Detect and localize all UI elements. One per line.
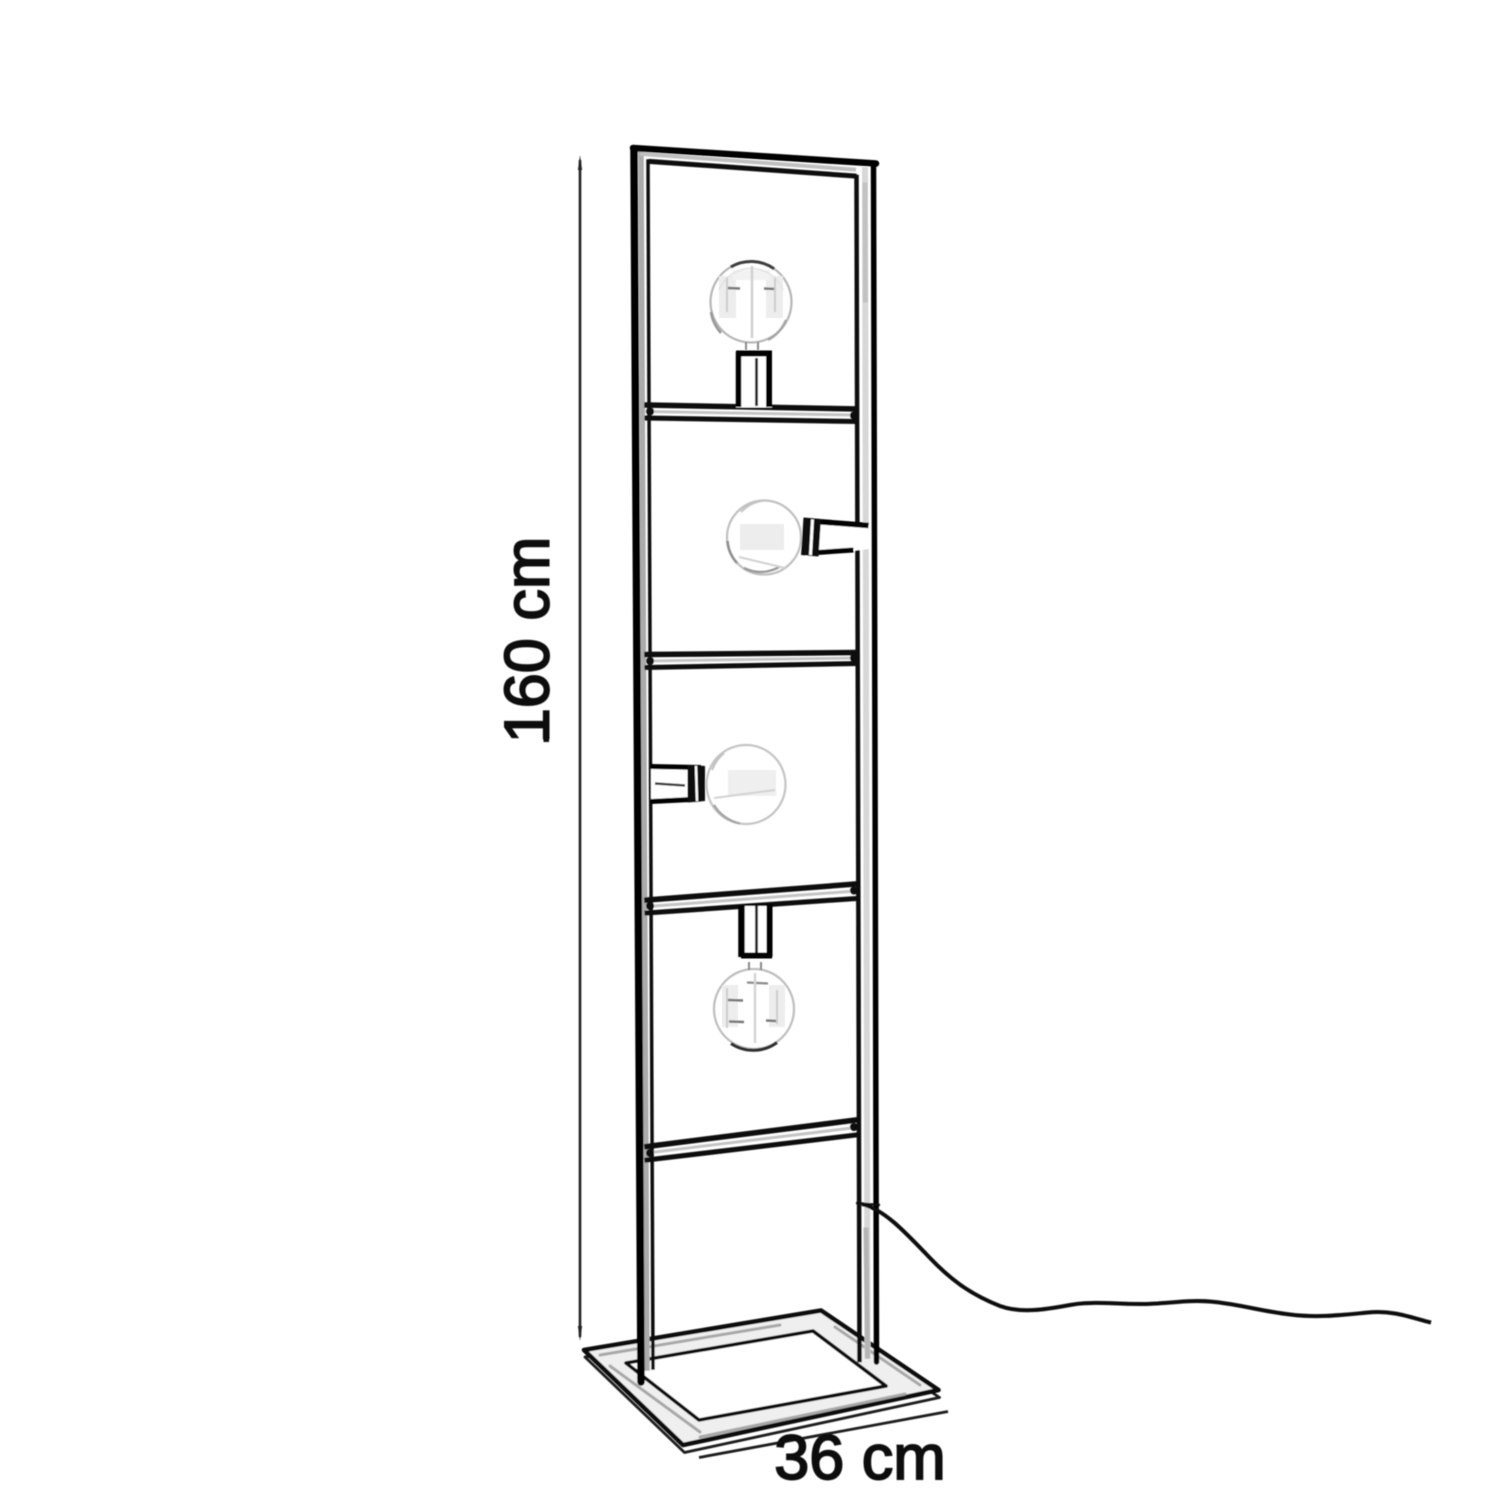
svg-text:160 cm: 160 cm — [493, 537, 563, 744]
svg-text:36 cm: 36 cm — [774, 1423, 946, 1493]
